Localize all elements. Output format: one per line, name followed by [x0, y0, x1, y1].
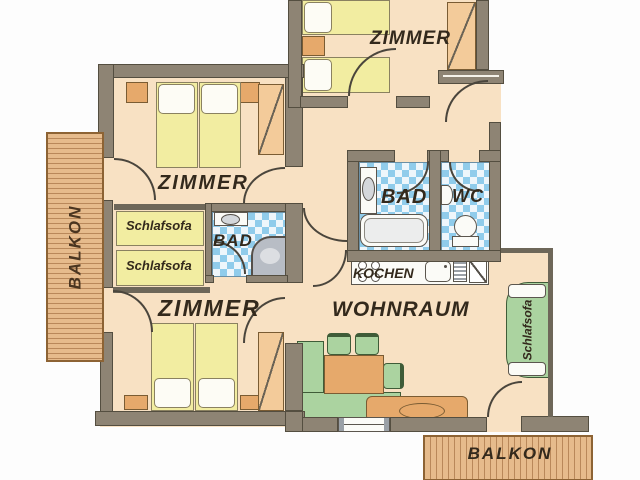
wall-bedroom-top-left: [288, 0, 302, 108]
wardrobe-top: [447, 2, 476, 70]
wall-bath-small-left: [205, 203, 212, 283]
bathtub-inner: [364, 218, 424, 243]
bedroom-middle-label: ZIMMER: [158, 172, 249, 195]
bathtub: [360, 214, 428, 247]
nightstand-bottom-left: [124, 395, 148, 410]
bath-small-sink-basin: [221, 214, 240, 225]
wall-bedroom-bottom-right: [285, 343, 303, 411]
sofa-armrest-bottom: [508, 362, 546, 376]
nightstand-middle-right: [240, 82, 260, 103]
wardrobe-bottom: [258, 332, 284, 411]
wall-east: [489, 122, 501, 262]
wall-bedroom-top-bottom-2: [396, 96, 430, 108]
pillow-bottom-2: [198, 378, 235, 408]
toilet-bowl: [454, 215, 477, 238]
chair-2: [355, 333, 379, 355]
wall-south-living-2: [390, 417, 487, 432]
window-end-left: [339, 418, 344, 431]
kitchen-drainer: [453, 261, 467, 282]
wall-bath-small-bottom-2: [246, 275, 288, 283]
wall-south-east-corner: [521, 416, 589, 432]
wall-south-west: [95, 411, 305, 426]
wall-bath-small-bottom-1: [205, 275, 214, 283]
window-sill-line: [339, 424, 389, 425]
shower: [251, 236, 287, 277]
wall-bedroom-middle-top: [98, 64, 304, 78]
shower-highlight: [260, 248, 280, 264]
wall-living-top-thin: [501, 248, 553, 253]
sleeper-sofa-2-label: Schlafsofa: [126, 258, 192, 273]
pillow-middle-1: [158, 84, 195, 114]
wall-bath-bottom: [347, 250, 501, 262]
kitchen-fridge: [469, 260, 487, 283]
balcony-left: BALKON: [46, 132, 104, 362]
wall-living-right-thin: [548, 250, 553, 417]
entry-step: [438, 70, 504, 84]
bath-main-sink-basin: [362, 177, 375, 201]
pillow-top-1: [304, 2, 332, 33]
wall-south-connector: [285, 411, 303, 432]
chair-3: [383, 363, 404, 389]
sleeper-sofa-living-label: Schlafsofa: [521, 300, 535, 361]
nightstand-top: [302, 36, 325, 56]
balcony-bottom-label: BALKON: [455, 444, 565, 464]
pillow-top-2: [304, 59, 332, 91]
bedroom-top-label: ZIMMER: [370, 28, 451, 50]
wall-bath-divider: [429, 150, 441, 262]
wardrobe-middle: [258, 84, 284, 155]
wall-bath-top-1: [347, 150, 395, 162]
floor-plan: BALKON BALKON: [0, 0, 640, 480]
dining-table: [324, 355, 384, 394]
window-living-south: [338, 417, 390, 432]
wall-bedroom-top-bottom-1: [300, 96, 348, 108]
entry-step-line: [443, 75, 499, 77]
wc-label: WC: [452, 186, 484, 207]
kitchen-sink: [425, 261, 451, 282]
kitchen-sink-drain: [444, 265, 447, 268]
kitchen-label: KOCHEN: [353, 265, 414, 281]
wall-bath-top-3: [479, 150, 501, 162]
toilet-tank: [452, 236, 479, 247]
bath-small-label: BAD: [213, 231, 253, 251]
sleeper-sofa-1-label: Schlafsofa: [126, 218, 192, 233]
wall-bedroom-top-right: [476, 0, 489, 70]
wall-niche-top: [114, 204, 205, 210]
window-end-right: [384, 418, 389, 431]
nightstand-middle-left: [126, 82, 148, 103]
sofa-armrest-top: [508, 284, 546, 298]
bath-main-label: BAD: [381, 186, 427, 209]
bedroom-bottom-label: ZIMMER: [158, 295, 261, 322]
chair-1: [327, 333, 351, 355]
wall-bath-left: [347, 150, 359, 262]
balcony-left-label: BALKON: [65, 205, 85, 290]
pillow-middle-2: [201, 84, 238, 114]
pillow-bottom-1: [154, 378, 191, 408]
living-room-label: WOHNRAUM: [332, 298, 469, 322]
wall-south-living-1: [302, 417, 338, 432]
wall-bath-small-right: [285, 203, 303, 283]
